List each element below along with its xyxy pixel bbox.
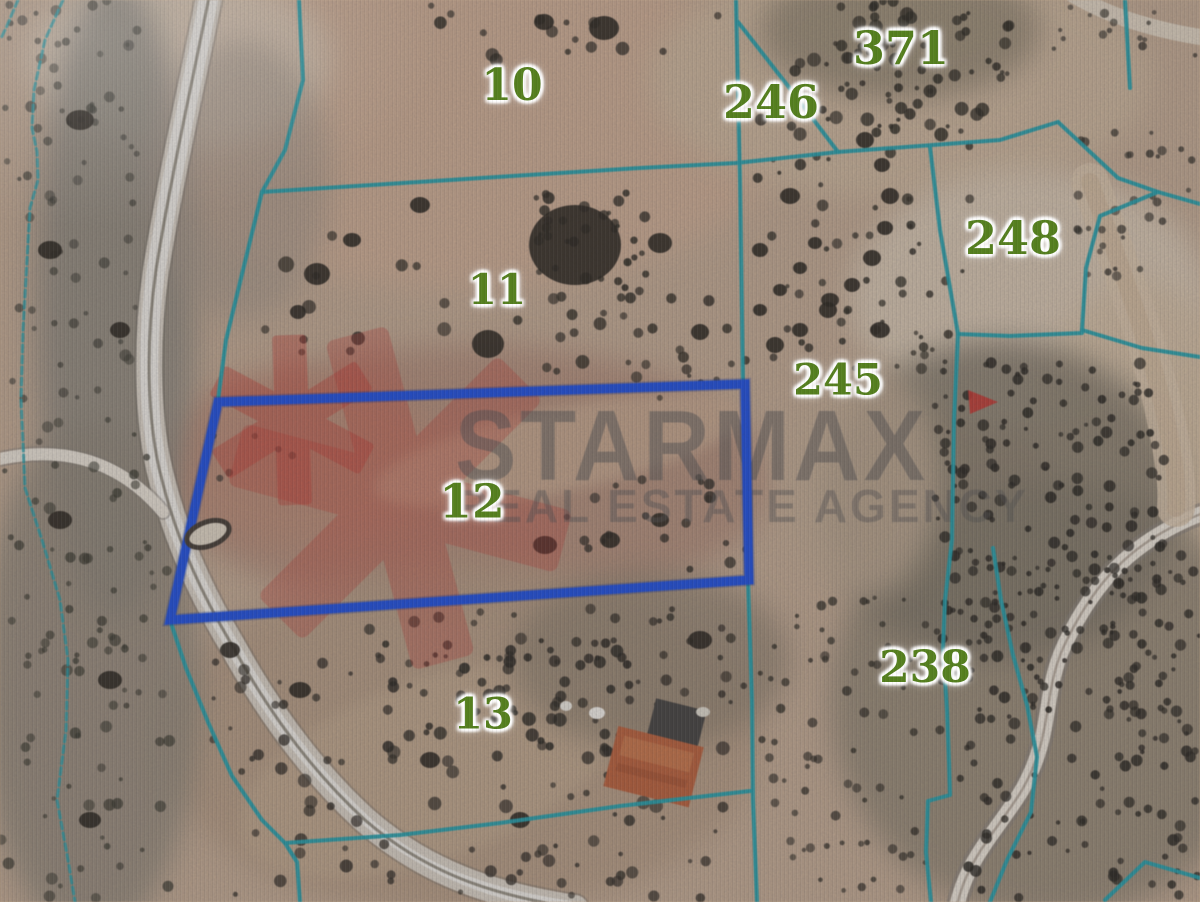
map-viewport[interactable]: STARMAX REAL ESTATE AGENCY 10 371 246 24… [0, 0, 1200, 902]
satellite-map: STARMAX REAL ESTATE AGENCY [0, 0, 1200, 902]
photo-grain [0, 0, 1200, 902]
